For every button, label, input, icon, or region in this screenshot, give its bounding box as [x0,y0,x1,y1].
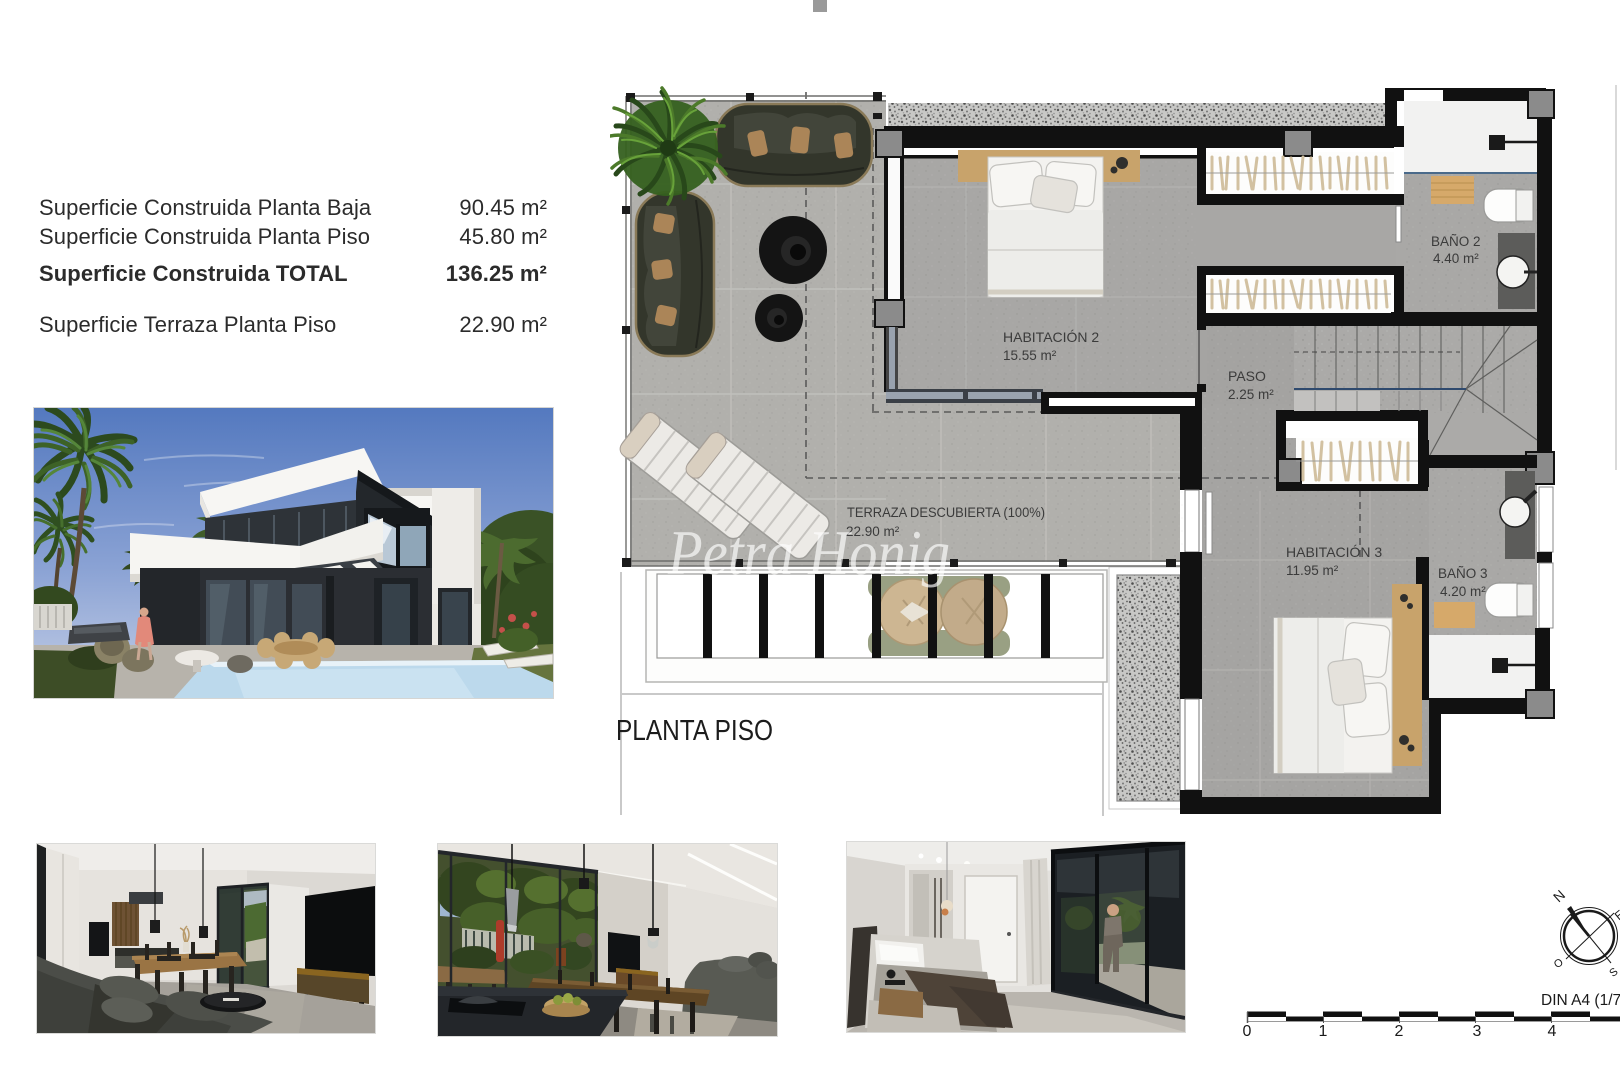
svg-text:Petra Honig: Petra Honig [667,517,950,588]
svg-text:PASO: PASO [1228,368,1266,384]
svg-text:N: N [1550,887,1568,906]
svg-text:1: 1 [1319,1023,1328,1040]
svg-text:0: 0 [1243,1023,1252,1040]
svg-text:BAÑO 3: BAÑO 3 [1438,566,1488,581]
svg-text:HABITACIÓN 3: HABITACIÓN 3 [1286,544,1382,560]
svg-text:4: 4 [1548,1023,1557,1040]
svg-text:4.20 m²: 4.20 m² [1440,584,1486,599]
svg-text:2.25 m²: 2.25 m² [1228,387,1274,402]
svg-text:4.40 m²: 4.40 m² [1433,251,1479,266]
svg-text:BAÑO 2: BAÑO 2 [1431,234,1481,249]
svg-text:HABITACIÓN 2: HABITACIÓN 2 [1003,329,1099,345]
svg-text:15.55 m²: 15.55 m² [1003,348,1057,363]
svg-text:O: O [1552,956,1566,971]
svg-text:3: 3 [1473,1023,1482,1040]
svg-text:11.95 m²: 11.95 m² [1286,563,1339,578]
svg-text:PLANTA PISO: PLANTA PISO [616,715,773,747]
svg-text:S: S [1607,966,1620,980]
svg-text:DIN A4 (1/75): DIN A4 (1/75) [1541,992,1620,1009]
svg-text:2: 2 [1395,1023,1404,1040]
